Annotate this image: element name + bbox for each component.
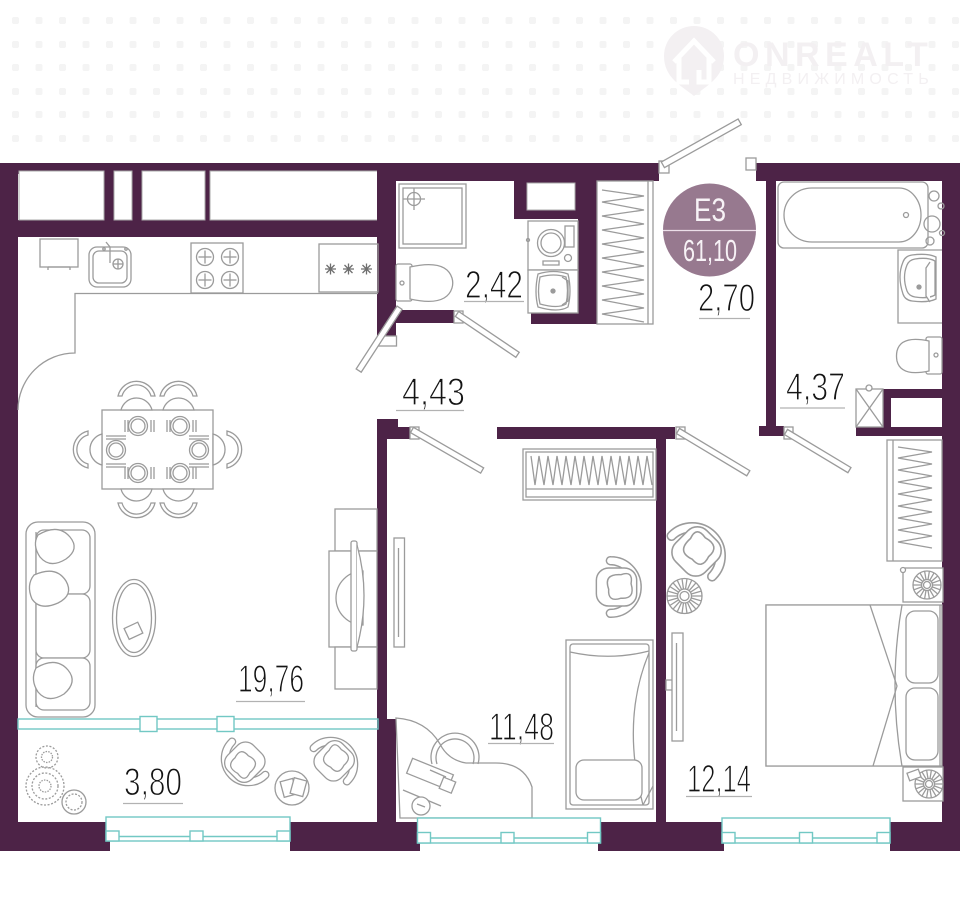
svg-text:12,14: 12,14 [687,758,751,801]
svg-text:61,10: 61,10 [683,233,737,268]
svg-text:ONREALT: ONREALT [733,36,933,74]
svg-text:4,37: 4,37 [786,366,845,409]
svg-text:2,42: 2,42 [465,264,523,307]
svg-text:11,48: 11,48 [489,706,554,749]
svg-text:4,43: 4,43 [402,371,465,414]
svg-text:Е3: Е3 [694,192,726,228]
svg-text:2,70: 2,70 [698,277,755,320]
svg-text:НЕДВИЖИМОСТЬ: НЕДВИЖИМОСТЬ [733,71,934,88]
svg-text:3,80: 3,80 [124,761,182,804]
svg-text:19,76: 19,76 [238,658,304,701]
